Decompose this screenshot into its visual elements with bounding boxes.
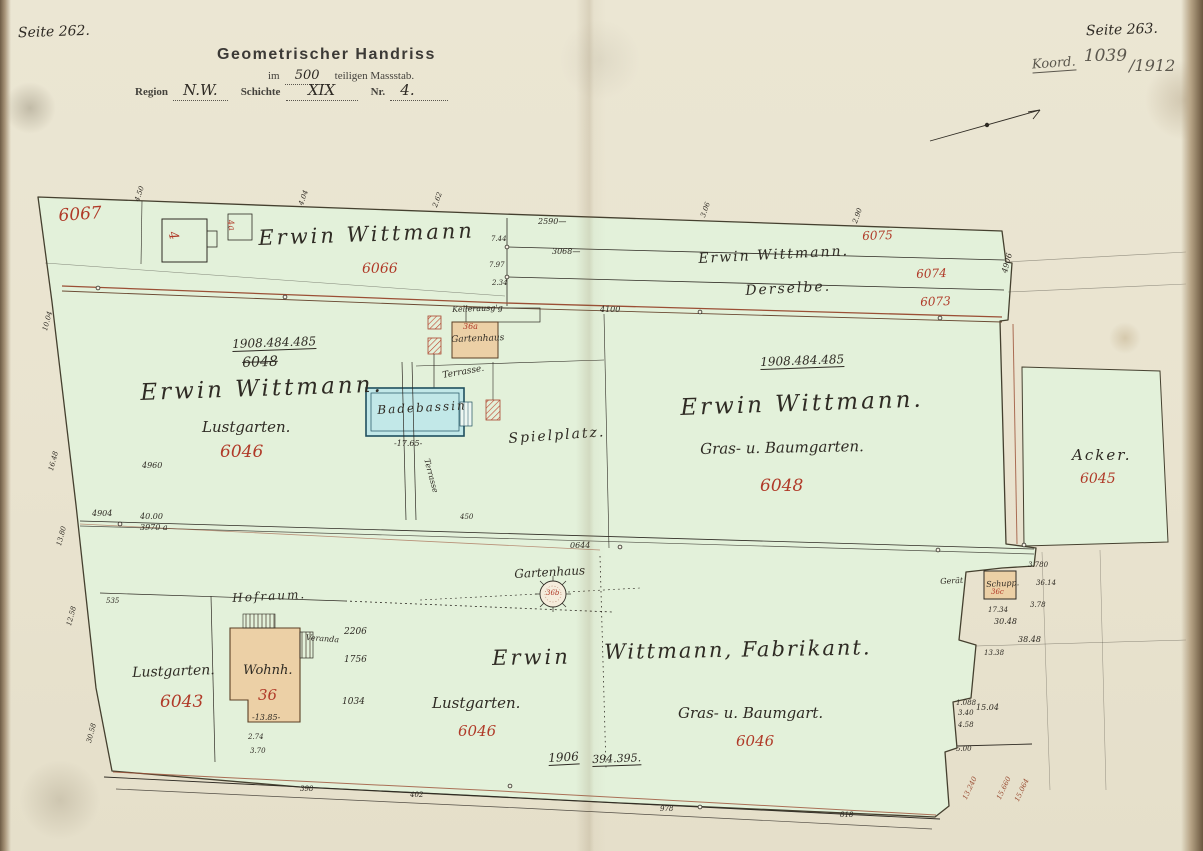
map-label: 13.38 [984,650,1004,657]
map-label: 4904 [92,510,112,518]
form-region-line: Region N.W. Schichte XIX Nr. 4. [135,80,448,101]
map-label: 1908.484.485 [232,335,316,352]
page-number-right: Seite 263. [1086,21,1158,39]
map-label: 3068— [552,248,580,256]
map-label: Gartenhaus [451,334,504,345]
map-label: 6073 [920,295,951,308]
map-label: 6045 [1080,472,1116,486]
nr-value: 4. [390,81,448,101]
map-label: 535 [106,598,119,605]
koord-note: Koord. 1039 /1912 [1032,52,1175,72]
map-label: 818 [840,812,853,819]
koord-number: 1039 [1084,46,1127,66]
map-label: 7.44 [491,236,507,243]
map-label: 4.58 [958,722,974,729]
map-label: 6066 [362,262,398,276]
map-label: 5.00 [956,746,972,753]
map-label: 15.04 [976,704,999,712]
map-label: 3970 a [140,524,168,532]
region-label: Region [135,86,168,98]
map-label: 3.78 [1030,602,1046,609]
map-label: 3.40 [958,710,974,717]
map-label: 6048 [760,478,803,495]
map-label: 0644 [570,542,590,550]
margin-line [976,640,1186,646]
map-label: 38.48 [1018,636,1041,644]
map-label: Hofraum. [232,588,306,604]
nr-label: Nr. [371,86,386,98]
map-label: 3.780 [1028,562,1048,569]
map-label: Gras- u. Baumgart. [678,706,823,721]
boundary-line [1013,324,1017,544]
north-arrow [930,110,1040,141]
map-label: 36c [991,589,1004,596]
margin-line [1100,550,1106,790]
map-label: 1906 [548,750,579,766]
map-label: 6075 [862,229,893,242]
map-label: 2.74 [248,734,264,741]
region-value: N.W. [173,81,228,101]
map-label: 394.395. [592,752,641,767]
schichte-label: Schichte [241,86,281,98]
map-label: 6046 [736,734,774,749]
map-label: 4100 [600,306,620,314]
map-label: 1.088 [956,700,976,707]
map-label: 978 [660,806,673,813]
margin-line [1042,552,1050,790]
map-label: 1908.484.485 [760,353,844,370]
small-structure [428,338,441,354]
map-label: 36.14 [1036,580,1056,587]
map-label: 6067 [58,205,102,225]
map-label: 450 [460,514,473,521]
map-label: Gerät [940,577,963,586]
small-structure [486,400,500,420]
map-label: Lustgarten. [432,696,520,711]
map-label: 6046 [220,444,263,461]
map-label: 36b [546,590,559,597]
page-number-left: Seite 262. [18,23,90,41]
schichte-value: XIX [286,81,358,101]
map-label: 36 [258,688,277,703]
map-label: Lustgarten. [132,663,215,680]
property-outline [38,197,1036,817]
koord-label: Koord. [1031,54,1076,73]
map-label: 6046 [458,724,496,739]
map-label: 6048 [242,355,278,370]
map-label: Gras- u. Baumgarten. [700,439,864,457]
map-label: 1756 [344,656,367,665]
map-label: 2206 [344,628,367,637]
map-label: -17.65- [394,440,422,448]
map-label: 6074 [916,267,947,280]
map-label: 36a [463,323,478,331]
map-label: 398 [300,786,313,793]
map-label: 3.70 [250,748,266,755]
map-label: 2.34 [492,280,508,287]
scanned-cadastral-sheet: Seite 262. Geometrischer Handriss im 500… [0,0,1203,851]
map-label: -13.85- [252,714,280,722]
map-label: 2590— [538,218,566,226]
margin-line [1006,252,1186,262]
map-label: 7.97 [489,262,505,269]
margin-line [1008,284,1186,292]
small-structure [428,316,441,329]
map-label: 4a [224,219,235,232]
map-label: 6043 [160,694,203,711]
form-title: Geometrischer Handriss [217,46,436,64]
map-label: Erwin [492,647,571,669]
map-label: 4960 [142,462,162,470]
map-label: Acker. [1072,448,1132,463]
map-label: 30.48 [994,618,1017,626]
koord-year: /1912 [1129,56,1175,75]
map-label: 40.00 [140,513,163,521]
map-label: 17.34 [988,607,1008,614]
map-label: 1034 [342,698,365,707]
map-label: 402 [410,792,423,799]
map-label: Lustgarten. [202,420,290,435]
map-label: Wittmann, Fabrikant. [604,637,872,663]
house-steps [243,614,275,628]
map-label: Gartenhaus [514,564,585,580]
map-label: Wohnh. [243,664,293,677]
